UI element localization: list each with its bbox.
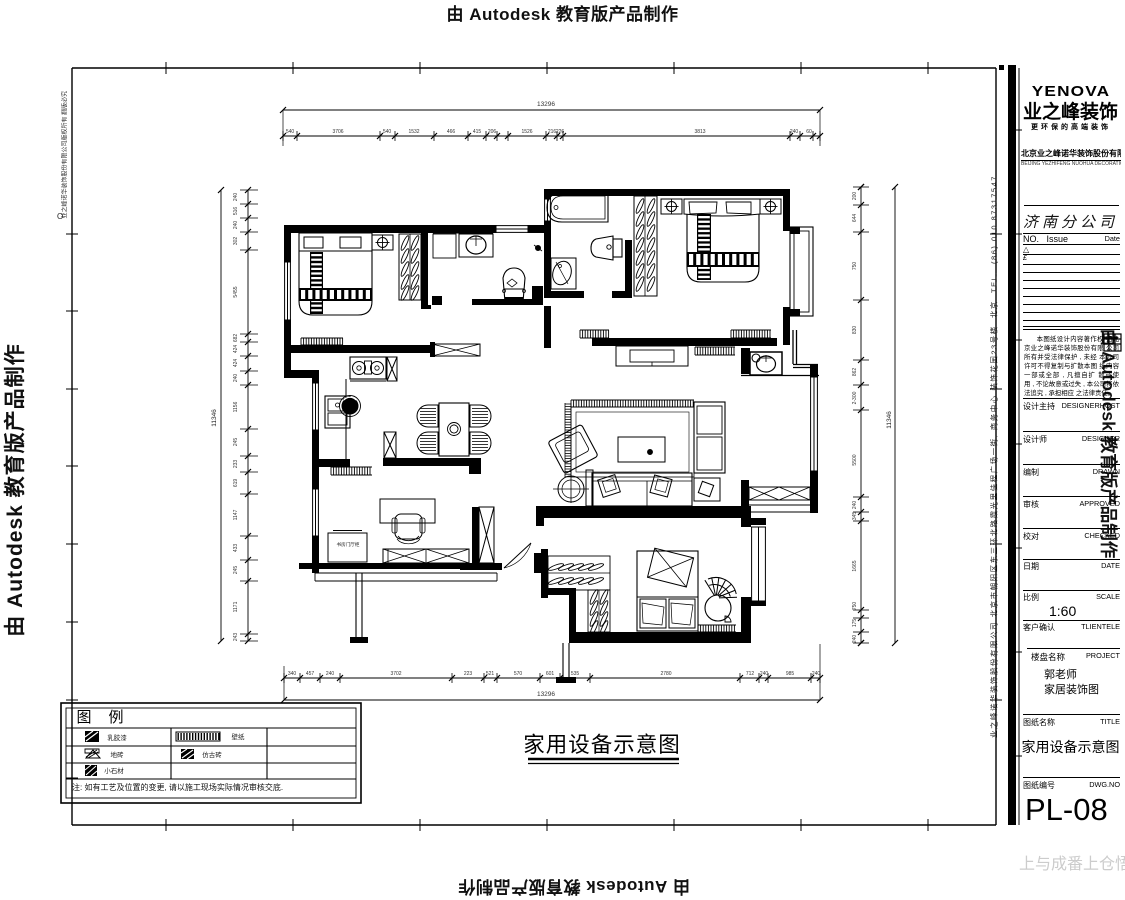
svg-text:516: 516: [233, 207, 239, 216]
svg-text:424: 424: [233, 345, 239, 354]
svg-text:750: 750: [852, 602, 858, 611]
svg-text:240: 240: [233, 193, 239, 202]
svg-text:245: 245: [233, 438, 239, 447]
svg-text:712: 712: [746, 671, 755, 677]
svg-text:11346: 11346: [886, 411, 893, 429]
svg-text:1532: 1532: [408, 129, 419, 135]
svg-text:862: 862: [852, 368, 858, 377]
svg-text:11346: 11346: [211, 409, 218, 427]
svg-text:240: 240: [326, 671, 335, 677]
svg-text:乳胶漆: 乳胶漆: [107, 733, 127, 742]
svg-text:243: 243: [233, 633, 239, 642]
svg-text:521: 521: [486, 671, 495, 677]
svg-text:家用设备示意图: 家用设备示意图: [523, 733, 681, 757]
svg-text:240: 240: [233, 221, 239, 230]
svg-text:345: 345: [852, 512, 858, 521]
svg-text:图: 图: [76, 709, 91, 726]
svg-text:1526: 1526: [521, 129, 532, 135]
svg-text:830: 830: [852, 326, 858, 335]
svg-text:60: 60: [806, 129, 812, 135]
svg-text:619: 619: [233, 479, 239, 488]
svg-text:13296: 13296: [537, 101, 555, 108]
svg-text:302: 302: [233, 237, 239, 246]
svg-text:壁纸: 壁纸: [232, 732, 246, 741]
svg-text:457: 457: [306, 671, 315, 677]
svg-text:240: 240: [790, 129, 799, 135]
svg-text:240: 240: [852, 501, 858, 510]
svg-text:601: 601: [546, 671, 555, 677]
svg-text:535: 535: [571, 671, 580, 677]
svg-text:200: 200: [852, 192, 858, 201]
svg-text:240: 240: [760, 671, 769, 677]
svg-text:例: 例: [108, 709, 123, 726]
svg-text:206: 206: [488, 129, 497, 135]
svg-text:245: 245: [233, 566, 239, 575]
svg-text:175: 175: [852, 619, 858, 628]
svg-text:682: 682: [233, 334, 239, 343]
svg-text:223: 223: [464, 671, 473, 677]
svg-text:240: 240: [852, 635, 858, 644]
svg-text:233: 233: [233, 460, 239, 469]
svg-text:5500: 5500: [852, 454, 858, 465]
svg-text:书房门厅柜: 书房门厅柜: [337, 541, 360, 548]
svg-text:340: 340: [288, 671, 297, 677]
svg-text:540: 540: [383, 129, 392, 135]
svg-text:240: 240: [812, 671, 821, 677]
svg-text:地砖: 地砖: [111, 750, 125, 759]
svg-text:5455: 5455: [233, 286, 239, 297]
svg-text:仿古砖: 仿古砖: [202, 750, 222, 759]
svg-text:240: 240: [233, 374, 239, 383]
svg-text:小石材: 小石材: [104, 766, 124, 775]
svg-text:466: 466: [447, 129, 456, 135]
svg-text:226: 226: [556, 129, 565, 135]
svg-text:985: 985: [786, 671, 795, 677]
svg-text:415: 415: [473, 129, 482, 135]
svg-text:1156: 1156: [233, 401, 239, 412]
svg-text:540: 540: [286, 129, 295, 135]
svg-text:3813: 3813: [694, 129, 705, 135]
svg-text:750: 750: [852, 262, 858, 271]
svg-text:2780: 2780: [660, 671, 671, 677]
svg-text:424: 424: [233, 359, 239, 368]
svg-text:433: 433: [233, 544, 239, 553]
svg-text:1147: 1147: [233, 509, 239, 520]
svg-text:1171: 1171: [233, 601, 239, 612]
svg-text:2-300: 2-300: [852, 391, 858, 404]
svg-text:3706: 3706: [332, 129, 343, 135]
svg-text:注: 如有工艺及位置的变更, 请以施工现场实际情况审核交底.: 注: 如有工艺及位置的变更, 请以施工现场实际情况审核交底.: [72, 782, 283, 792]
svg-text:3702: 3702: [390, 671, 401, 677]
svg-text:13296: 13296: [537, 691, 555, 698]
svg-text:570: 570: [514, 671, 523, 677]
svg-text:644: 644: [852, 214, 858, 223]
svg-text:1665: 1665: [852, 560, 858, 571]
